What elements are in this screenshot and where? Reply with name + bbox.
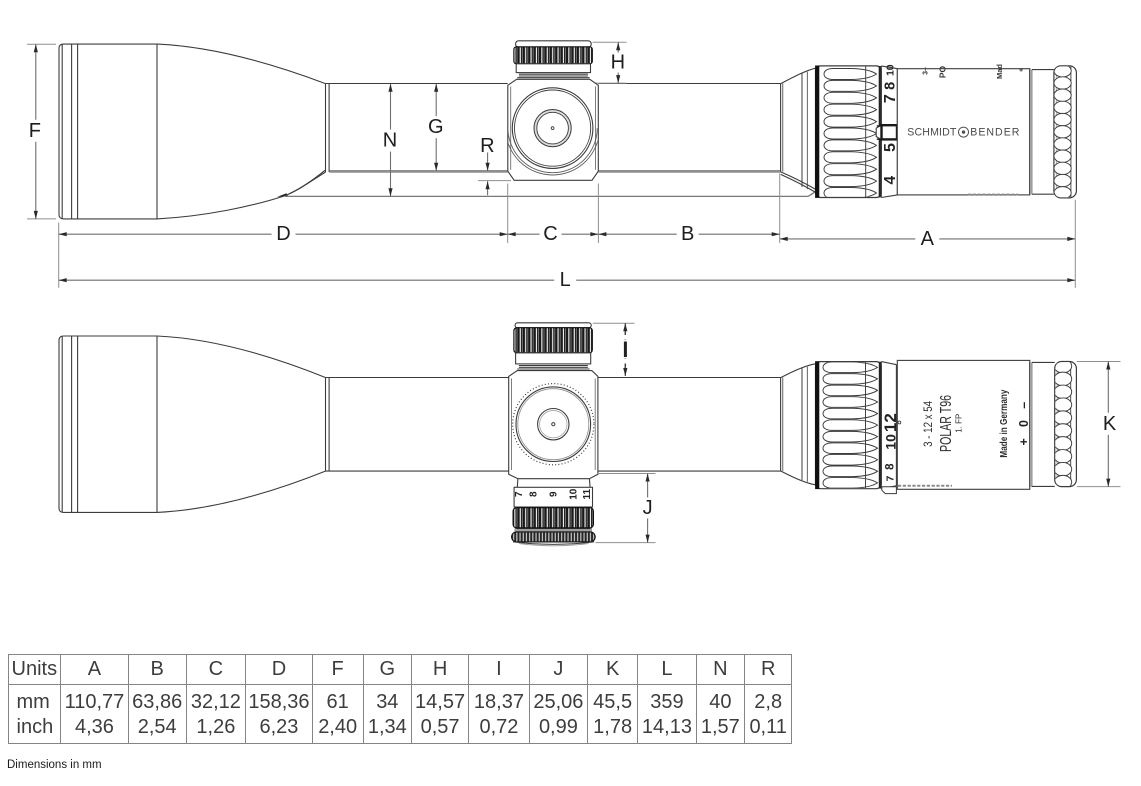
svg-text:4: 4 xyxy=(882,176,899,185)
svg-text:9: 9 xyxy=(549,491,560,497)
svg-text:BENDER: BENDER xyxy=(970,127,1020,139)
svg-text:B: B xyxy=(681,223,694,245)
svg-text:C: C xyxy=(543,223,557,245)
svg-text:K: K xyxy=(1103,413,1117,435)
svg-text:Made in Germany: Made in Germany xyxy=(998,389,1010,457)
svg-text:5: 5 xyxy=(882,143,899,152)
svg-text:F: F xyxy=(29,120,41,142)
svg-text:7: 7 xyxy=(884,476,896,482)
svg-text:SCHMIDT: SCHMIDT xyxy=(907,127,957,139)
svg-text:1. FP: 1. FP xyxy=(954,414,963,433)
svg-text:10: 10 xyxy=(885,64,897,76)
svg-text:7: 7 xyxy=(882,94,899,103)
svg-text:POLAR T96: POLAR T96 xyxy=(938,395,955,452)
svg-text:7: 7 xyxy=(514,491,525,497)
svg-text:8: 8 xyxy=(529,491,540,497)
svg-text:D: D xyxy=(276,223,290,245)
svg-text:3–: 3– xyxy=(922,67,929,75)
svg-text:+: + xyxy=(1018,68,1025,72)
svg-text:8: 8 xyxy=(884,463,896,470)
svg-text:Mad: Mad xyxy=(995,64,1004,79)
svg-text:8: 8 xyxy=(883,82,899,90)
svg-text:N: N xyxy=(383,130,397,152)
svg-text:3 - 12 x 54: 3 - 12 x 54 xyxy=(923,400,935,447)
svg-text:R: R xyxy=(480,135,494,157)
svg-text:G: G xyxy=(428,116,444,138)
svg-text:0: 0 xyxy=(1017,420,1031,427)
svg-text:11: 11 xyxy=(582,488,593,499)
svg-text:10: 10 xyxy=(568,488,579,500)
svg-text:J: J xyxy=(643,497,653,519)
svg-text:–: – xyxy=(1017,402,1031,409)
svg-text:H: H xyxy=(611,52,625,74)
svg-text:+: + xyxy=(1017,438,1031,445)
svg-text:A: A xyxy=(921,228,935,250)
svg-text:10: 10 xyxy=(882,434,898,450)
svg-text:PO: PO xyxy=(938,65,948,78)
svg-text:L: L xyxy=(560,269,571,291)
